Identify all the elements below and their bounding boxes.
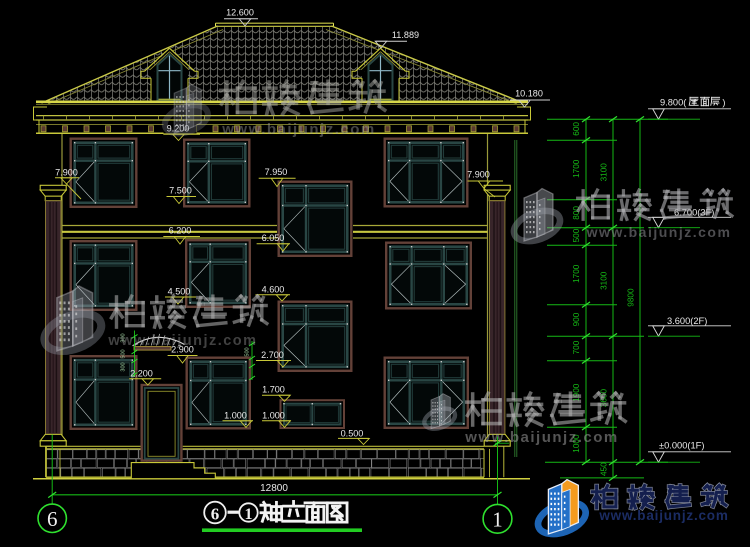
- svg-text:2.200: 2.200: [130, 369, 153, 379]
- svg-text:1.700: 1.700: [262, 385, 285, 395]
- svg-text:1700: 1700: [572, 159, 581, 178]
- svg-text:7.500: 7.500: [169, 186, 192, 196]
- svg-text:700: 700: [572, 340, 581, 354]
- svg-text:7.900: 7.900: [55, 168, 78, 178]
- svg-text:9800: 9800: [627, 288, 636, 307]
- svg-text:www.baijunjz.com: www.baijunjz.com: [598, 508, 728, 523]
- svg-text:7.900: 7.900: [467, 170, 490, 180]
- svg-text:6: 6: [211, 505, 220, 524]
- svg-text:3.600(2F): 3.600(2F): [667, 316, 707, 326]
- svg-text:600: 600: [572, 122, 581, 136]
- svg-text:12800: 12800: [260, 483, 288, 494]
- svg-text:11.889: 11.889: [392, 30, 419, 40]
- svg-text:1900: 1900: [572, 383, 581, 402]
- svg-text:500: 500: [121, 349, 127, 358]
- svg-text:www.baijunjz.com: www.baijunjz.com: [586, 224, 732, 240]
- svg-text:900: 900: [572, 312, 581, 326]
- svg-text:500: 500: [572, 228, 581, 242]
- svg-text:6.200: 6.200: [169, 226, 192, 236]
- svg-text:4.500: 4.500: [168, 287, 191, 297]
- svg-text:300: 300: [121, 362, 127, 371]
- svg-text:): ): [722, 98, 725, 108]
- svg-text:3100: 3100: [600, 163, 609, 182]
- svg-text:www.baijunjz.com: www.baijunjz.com: [464, 429, 618, 446]
- svg-text:1.000: 1.000: [262, 410, 285, 420]
- svg-text:1700: 1700: [572, 264, 581, 283]
- svg-text:2.700: 2.700: [261, 350, 284, 360]
- svg-text:12.600: 12.600: [226, 8, 254, 18]
- svg-text:6.050: 6.050: [262, 233, 285, 243]
- svg-text:3100: 3100: [600, 271, 609, 290]
- svg-text:www.baijunjz.com: www.baijunjz.com: [221, 121, 375, 138]
- svg-text:1.000: 1.000: [224, 410, 247, 420]
- svg-text:450: 450: [600, 462, 609, 476]
- svg-text:±0.000(1F): ±0.000(1F): [659, 440, 704, 450]
- svg-text:10.180: 10.180: [515, 89, 543, 99]
- svg-text:4.600: 4.600: [262, 285, 285, 295]
- svg-text:0.500: 0.500: [341, 428, 364, 438]
- svg-text:www.baijunjz.com: www.baijunjz.com: [107, 333, 257, 349]
- svg-text:6: 6: [47, 507, 58, 531]
- svg-text:9.800(: 9.800(: [660, 98, 687, 108]
- svg-text:7.950: 7.950: [265, 167, 288, 177]
- svg-text:1: 1: [492, 508, 503, 532]
- svg-text:1: 1: [245, 506, 253, 523]
